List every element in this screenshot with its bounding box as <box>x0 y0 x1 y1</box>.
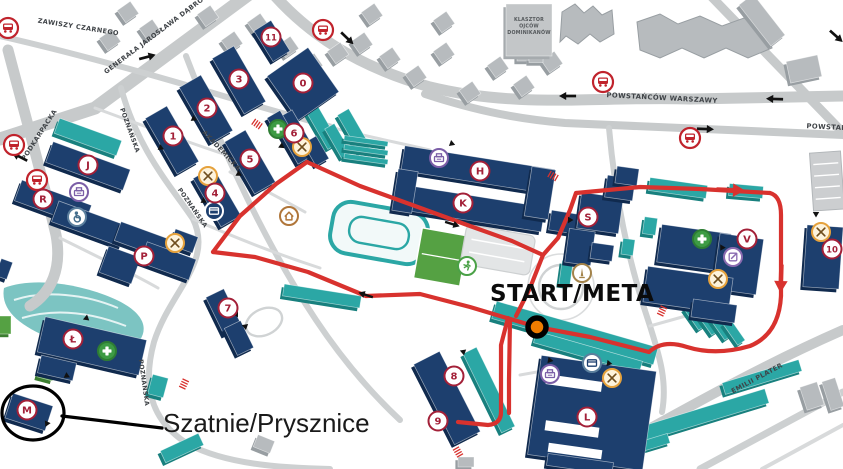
sports-field <box>413 228 468 286</box>
campus-building <box>615 166 639 186</box>
sport-icon <box>467 261 470 264</box>
building-badge-R: R <box>39 195 47 206</box>
building-badge-3: 3 <box>230 70 249 89</box>
building-badge-0: 0 <box>300 79 307 90</box>
atm-light-icon <box>583 354 601 372</box>
bus-icon <box>319 27 327 29</box>
monastery-label: OJCÓW <box>519 23 539 30</box>
bus-icon <box>691 140 694 143</box>
bus-icon <box>4 30 7 33</box>
building-badge-2: 2 <box>198 99 217 118</box>
building-badge-Ł: Ł <box>64 330 83 349</box>
teal-building <box>621 238 635 256</box>
bus-icon <box>313 20 333 40</box>
bus-icon <box>27 170 47 190</box>
building-badge-K: K <box>454 194 473 213</box>
restaurant-icon <box>812 223 830 241</box>
bus-icon <box>599 79 607 81</box>
atm-dark-icon <box>205 202 223 220</box>
monastery-building <box>506 4 552 56</box>
building-badge-H: H <box>476 167 484 178</box>
hostel-icon <box>280 207 298 225</box>
building-badge-P: P <box>135 247 154 266</box>
restaurant-icon <box>199 167 217 185</box>
bus-icon <box>4 135 24 155</box>
building-badge-11: 11 <box>265 34 277 44</box>
building-badge-4: 4 <box>206 184 225 203</box>
medical-icon <box>698 237 707 240</box>
building-badge-10: 10 <box>826 246 838 256</box>
atm-light-icon <box>583 354 601 372</box>
bus-icon <box>599 84 602 87</box>
building-badge-7: 7 <box>219 299 238 318</box>
building-badge-5: 5 <box>241 150 260 169</box>
bus-icon <box>680 128 700 148</box>
monastery-label: DOMINIKANÓW <box>507 29 551 36</box>
gray-block <box>458 457 474 467</box>
printer-icon <box>430 149 448 167</box>
printer-icon <box>541 365 559 383</box>
restaurant-icon <box>709 270 727 288</box>
medical-icon <box>693 230 711 248</box>
map-canvas: KLASZTOROJCÓWDOMINIKANÓWZAWISZY CZARNEGO… <box>0 0 843 469</box>
building-badge-R: R <box>34 190 53 209</box>
building-badge-1: 1 <box>170 132 177 143</box>
restaurant-icon <box>166 234 184 252</box>
route-direction-arrow <box>781 265 782 282</box>
building-badge-9: 9 <box>435 417 442 428</box>
bus-icon <box>686 140 689 143</box>
medical-icon <box>274 127 283 130</box>
bus-icon <box>593 72 613 92</box>
building-badge-2: 2 <box>204 104 211 115</box>
running-route <box>509 319 510 413</box>
lot-rect <box>810 151 843 211</box>
building-badge-6: 6 <box>285 124 304 143</box>
registration-icon <box>724 248 742 266</box>
printer-icon <box>541 365 559 383</box>
building-badge-M: M <box>18 401 37 420</box>
printer-icon <box>70 183 88 201</box>
green-patch <box>0 316 11 334</box>
campus-building <box>590 243 614 262</box>
building-badge-P: P <box>140 252 147 263</box>
bus-icon <box>10 147 13 150</box>
bus-icon <box>9 30 12 33</box>
bus-icon <box>324 32 327 35</box>
building-badge-Ł: Ł <box>69 335 77 346</box>
monastery-label: KLASZTOR <box>514 17 544 23</box>
medical-icon <box>98 342 116 360</box>
bus-icon <box>38 182 41 185</box>
building-badge-V: V <box>743 235 751 246</box>
bus-icon <box>15 147 18 150</box>
route-direction-arrow <box>717 190 734 191</box>
building-badge-S: S <box>579 208 598 227</box>
building-badge-H: H <box>471 162 490 181</box>
bus-icon <box>4 25 12 27</box>
bus-icon <box>33 182 36 185</box>
building-badge-M: M <box>22 406 32 417</box>
bus-icon <box>686 135 694 137</box>
hostel-icon <box>280 207 298 225</box>
building-badge-L: L <box>578 408 597 427</box>
building-badge-9: 9 <box>429 412 448 431</box>
building-badge-5: 5 <box>247 155 254 166</box>
building-badge-1: 1 <box>164 127 183 146</box>
building-badge-11: 11 <box>262 28 281 47</box>
bus-icon <box>604 84 607 87</box>
parking-lot-ne <box>810 151 843 211</box>
building-badge-L: L <box>584 413 591 424</box>
atm-dark-icon <box>205 202 223 220</box>
building-badge-8: 8 <box>451 372 458 383</box>
building-badge-0: 0 <box>294 74 313 93</box>
start-meta-marker <box>528 318 546 336</box>
building-badge-S: S <box>584 213 591 224</box>
building-badge-K: K <box>459 199 468 210</box>
printer-icon <box>430 149 448 167</box>
accessibility-icon <box>75 211 78 214</box>
monument-icon <box>573 264 591 282</box>
bus-icon <box>0 18 18 38</box>
building-badge-10: 10 <box>823 240 842 259</box>
restaurant-icon <box>603 369 621 387</box>
building-badge-J: J <box>79 156 98 175</box>
printer-icon <box>70 183 88 201</box>
building-badge-7: 7 <box>225 304 232 315</box>
sport-icon <box>458 257 476 275</box>
start-meta-marker <box>528 318 546 336</box>
teal-building <box>642 217 657 236</box>
bus-icon <box>33 177 41 179</box>
medical-icon <box>103 349 112 352</box>
building-badge-4: 4 <box>212 189 219 200</box>
building-badge-6: 6 <box>291 129 298 140</box>
building-badge-V: V <box>738 230 757 249</box>
campus-route-map: KLASZTOROJCÓWDOMINIKANÓWZAWISZY CZARNEGO… <box>0 0 843 469</box>
building-badge-J: J <box>85 161 90 172</box>
accessibility-icon <box>68 208 86 226</box>
bus-icon <box>10 142 18 144</box>
building-badge-3: 3 <box>236 75 243 86</box>
building-badge-8: 8 <box>445 367 464 386</box>
bus-icon <box>319 32 322 35</box>
